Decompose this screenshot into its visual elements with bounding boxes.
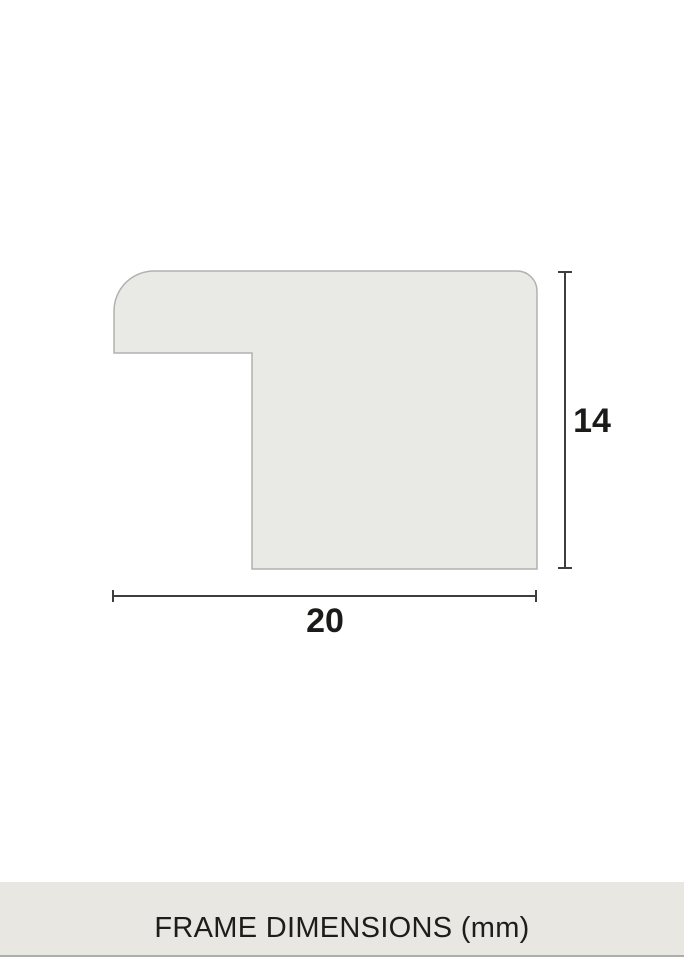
- height-dimension-line: [558, 272, 572, 568]
- width-dimension-line: [113, 590, 536, 602]
- frame-profile-shape: [114, 271, 537, 569]
- frame-dimensions-diagram: 14 20 FRAME DIMENSIONS (mm): [0, 0, 684, 957]
- height-dimension-value: 14: [573, 402, 611, 440]
- caption-band: FRAME DIMENSIONS (mm): [0, 882, 684, 957]
- profile-diagram: 14 20: [0, 0, 684, 882]
- width-dimension-value: 20: [306, 602, 344, 640]
- caption-text: FRAME DIMENSIONS (mm): [0, 912, 684, 945]
